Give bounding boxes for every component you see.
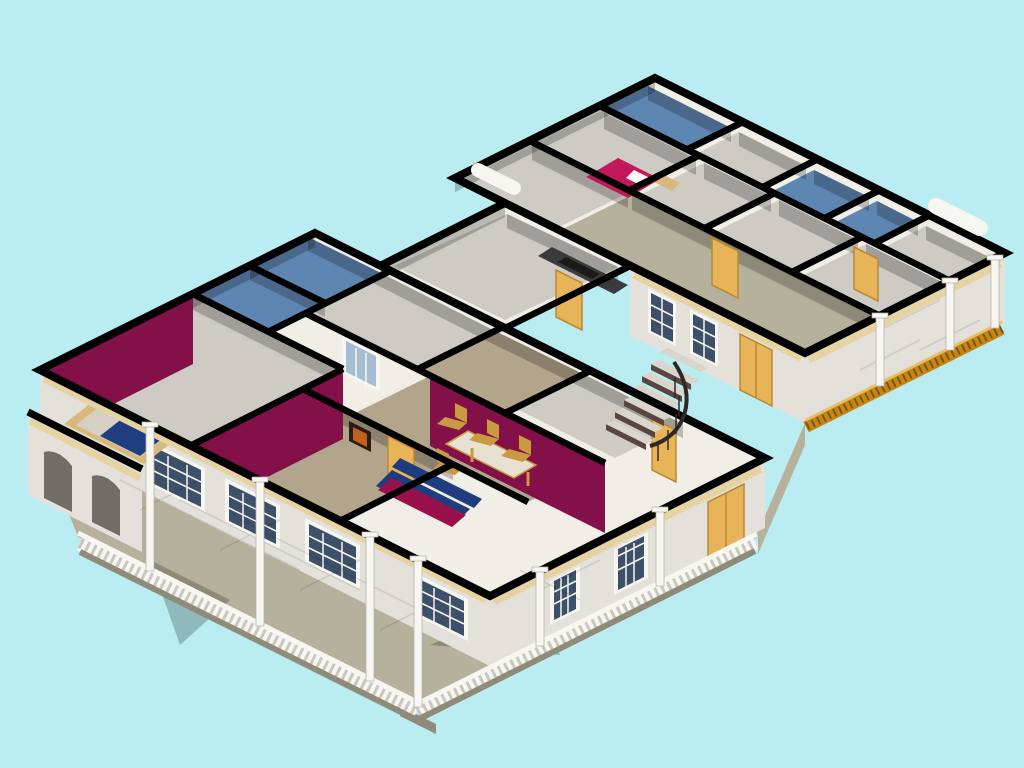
column-cap — [410, 556, 426, 561]
column-cap — [652, 507, 668, 512]
veranda-column — [946, 281, 954, 350]
porch-column — [656, 510, 664, 586]
porch-column — [414, 559, 422, 707]
porch-column — [536, 570, 544, 646]
isometric-house-svg — [0, 0, 1024, 768]
column-cap — [252, 477, 268, 482]
column-cap — [532, 567, 548, 572]
porch-column — [146, 425, 154, 571]
veranda-column — [991, 258, 999, 328]
column-cap — [362, 532, 378, 537]
floorplan-render — [0, 0, 1024, 768]
column-cap — [872, 313, 888, 318]
column-cap — [142, 422, 158, 427]
porch-column — [366, 535, 374, 681]
porch-column — [256, 480, 264, 626]
column-cap — [987, 255, 1003, 260]
column-cap — [942, 278, 958, 283]
veranda-column — [876, 316, 884, 386]
